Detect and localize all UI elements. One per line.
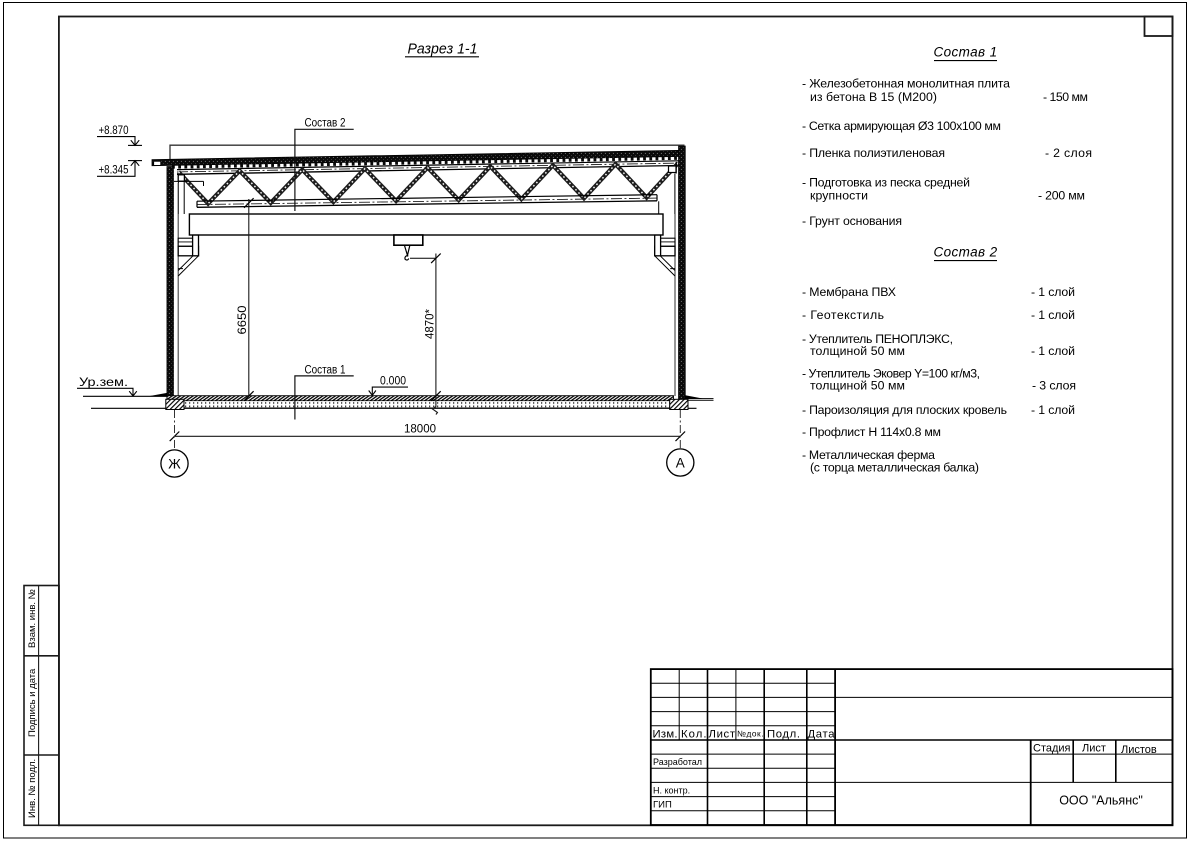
svg-text:Ж: Ж [168,457,181,472]
svg-text:- Геотекстиль: - Геотекстиль [802,308,884,322]
svg-text:Изм.: Изм. [653,729,678,741]
svg-text:Состав 1: Состав 1 [933,45,997,60]
svg-text:Взам. инв. №: Взам. инв. № [27,589,38,648]
svg-text:- Мембрана ПВХ: - Мембрана ПВХ [802,285,896,299]
svg-text:- 1 слой: - 1 слой [1031,285,1075,299]
svg-text:ГИП: ГИП [653,800,672,811]
svg-text:Разрез 1-1: Разрез 1-1 [408,40,478,57]
svg-text:Кол.: Кол. [681,729,707,741]
svg-text:Подл.: Подл. [767,729,800,741]
svg-text:толщиной 50 мм: толщиной 50 мм [810,379,905,393]
svg-text:№док.: №док. [737,729,764,739]
svg-text:Разработал: Разработал [653,757,702,767]
svg-text:Н. контр.: Н. контр. [653,786,690,796]
svg-text:Подпись и дата: Подпись и дата [27,668,38,737]
svg-text:Лист: Лист [1082,743,1106,755]
svg-text:- Пленка полиэтиленовая: - Пленка полиэтиленовая [802,146,945,160]
svg-text:Лист: Лист [709,729,736,741]
svg-text:Состав 1: Состав 1 [305,365,346,377]
svg-text:А: А [676,456,685,471]
svg-text:- Сетка армирующая Ø3 100х100: - Сетка армирующая Ø3 100х100 мм [802,119,1001,133]
svg-text:(с торца металлическая балка): (с торца металлическая балка) [810,460,979,474]
svg-text:- 150 мм: - 150 мм [1043,90,1088,104]
svg-text:6650: 6650 [237,306,249,335]
svg-text:Состав 2: Состав 2 [305,118,346,130]
svg-text:4870*: 4870* [424,308,436,339]
svg-text:Листов: Листов [1121,744,1157,756]
svg-text:+8.345: +8.345 [99,164,129,176]
svg-text:0.000: 0.000 [380,376,406,388]
svg-text:- 2 слоя: - 2 слоя [1045,146,1092,160]
svg-text:+8.870: +8.870 [99,125,129,137]
svg-text:крупности: крупности [810,188,868,202]
svg-text:- Пароизоляция для плоских кро: - Пароизоляция для плоских кровель [802,403,1007,417]
svg-text:Состав 2: Состав 2 [933,245,997,260]
svg-text:Ур.зем.: Ур.зем. [79,377,128,389]
svg-text:- 200 мм: - 200 мм [1038,188,1085,202]
svg-text:Стадия: Стадия [1033,743,1071,755]
svg-text:- Профлист Н 114х0.8 мм: - Профлист Н 114х0.8 мм [802,425,941,439]
svg-text:ООО "Альянс": ООО "Альянс" [1059,793,1143,807]
svg-text:- 1 слой: - 1 слой [1031,403,1075,417]
svg-text:- 1 слой: - 1 слой [1031,344,1075,358]
svg-text:- Грунт основания: - Грунт основания [802,214,902,228]
svg-text:18000: 18000 [404,424,436,436]
svg-text:Дата: Дата [808,729,836,741]
svg-text:- 1 слой: - 1 слой [1031,308,1075,322]
svg-text:из бетона В 15 (М200): из бетона В 15 (М200) [810,90,937,104]
svg-text:Инв. № подл.: Инв. № подл. [27,759,38,818]
svg-text:толщиной 50 мм: толщиной 50 мм [810,344,905,358]
svg-text:- 3 слоя: - 3 слоя [1032,379,1076,393]
svg-text:- Железобетонная монолитная п: - Железобетонная монолитная плита [802,76,1010,90]
